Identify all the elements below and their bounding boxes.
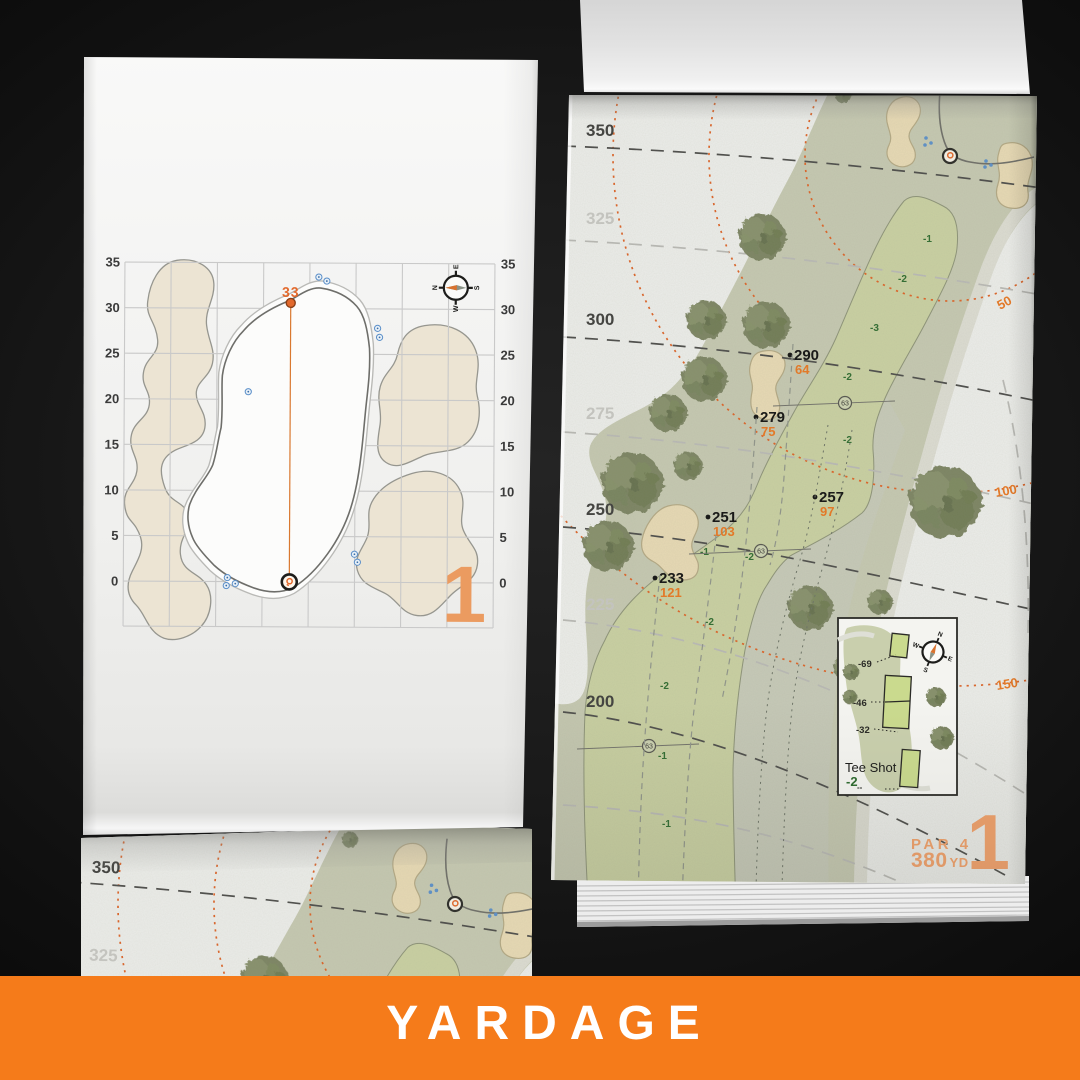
svg-text:S: S — [474, 285, 481, 290]
svg-text:-69: -69 — [858, 659, 872, 670]
svg-text:N: N — [432, 285, 439, 290]
svg-text:35: 35 — [105, 254, 120, 269]
svg-text:15: 15 — [104, 437, 119, 452]
svg-text:30: 30 — [105, 300, 120, 315]
svg-text:20: 20 — [105, 391, 120, 406]
svg-text:1: 1 — [441, 550, 486, 639]
svg-text:0: 0 — [111, 573, 118, 588]
svg-text:10: 10 — [104, 482, 119, 497]
svg-text:E: E — [453, 264, 460, 269]
svg-text:5: 5 — [111, 528, 118, 543]
svg-text:33: 33 — [282, 284, 300, 300]
svg-text:W: W — [453, 305, 460, 312]
svg-text:25: 25 — [105, 346, 120, 361]
